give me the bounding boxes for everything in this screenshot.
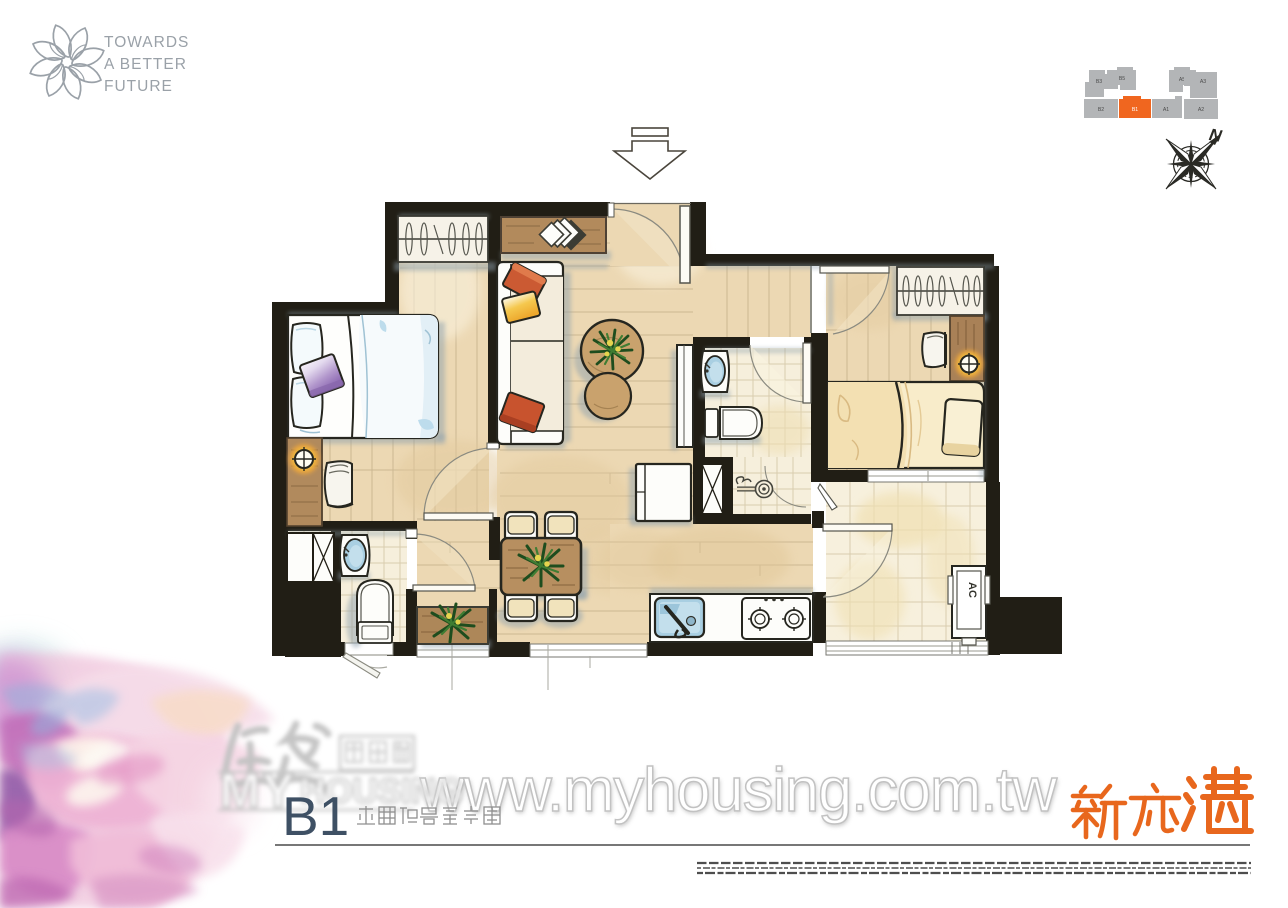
svg-text:B1: B1 [1132, 107, 1138, 113]
svg-text:AC: AC [966, 582, 978, 598]
svg-text:FUTURE: FUTURE [104, 78, 173, 95]
svg-text:B2: B2 [1098, 107, 1104, 113]
svg-text:A3: A3 [1200, 79, 1206, 85]
svg-text:TOWARDS: TOWARDS [104, 34, 189, 51]
svg-text:www.myhousing.com.tw: www.myhousing.com.tw [419, 756, 1057, 825]
svg-text:B3: B3 [1096, 79, 1102, 85]
svg-text:B5: B5 [1119, 76, 1125, 82]
svg-text:A1: A1 [1163, 107, 1169, 113]
svg-text:A BETTER: A BETTER [104, 56, 187, 73]
svg-text:B1: B1 [282, 785, 349, 847]
svg-text:A2: A2 [1198, 107, 1204, 113]
